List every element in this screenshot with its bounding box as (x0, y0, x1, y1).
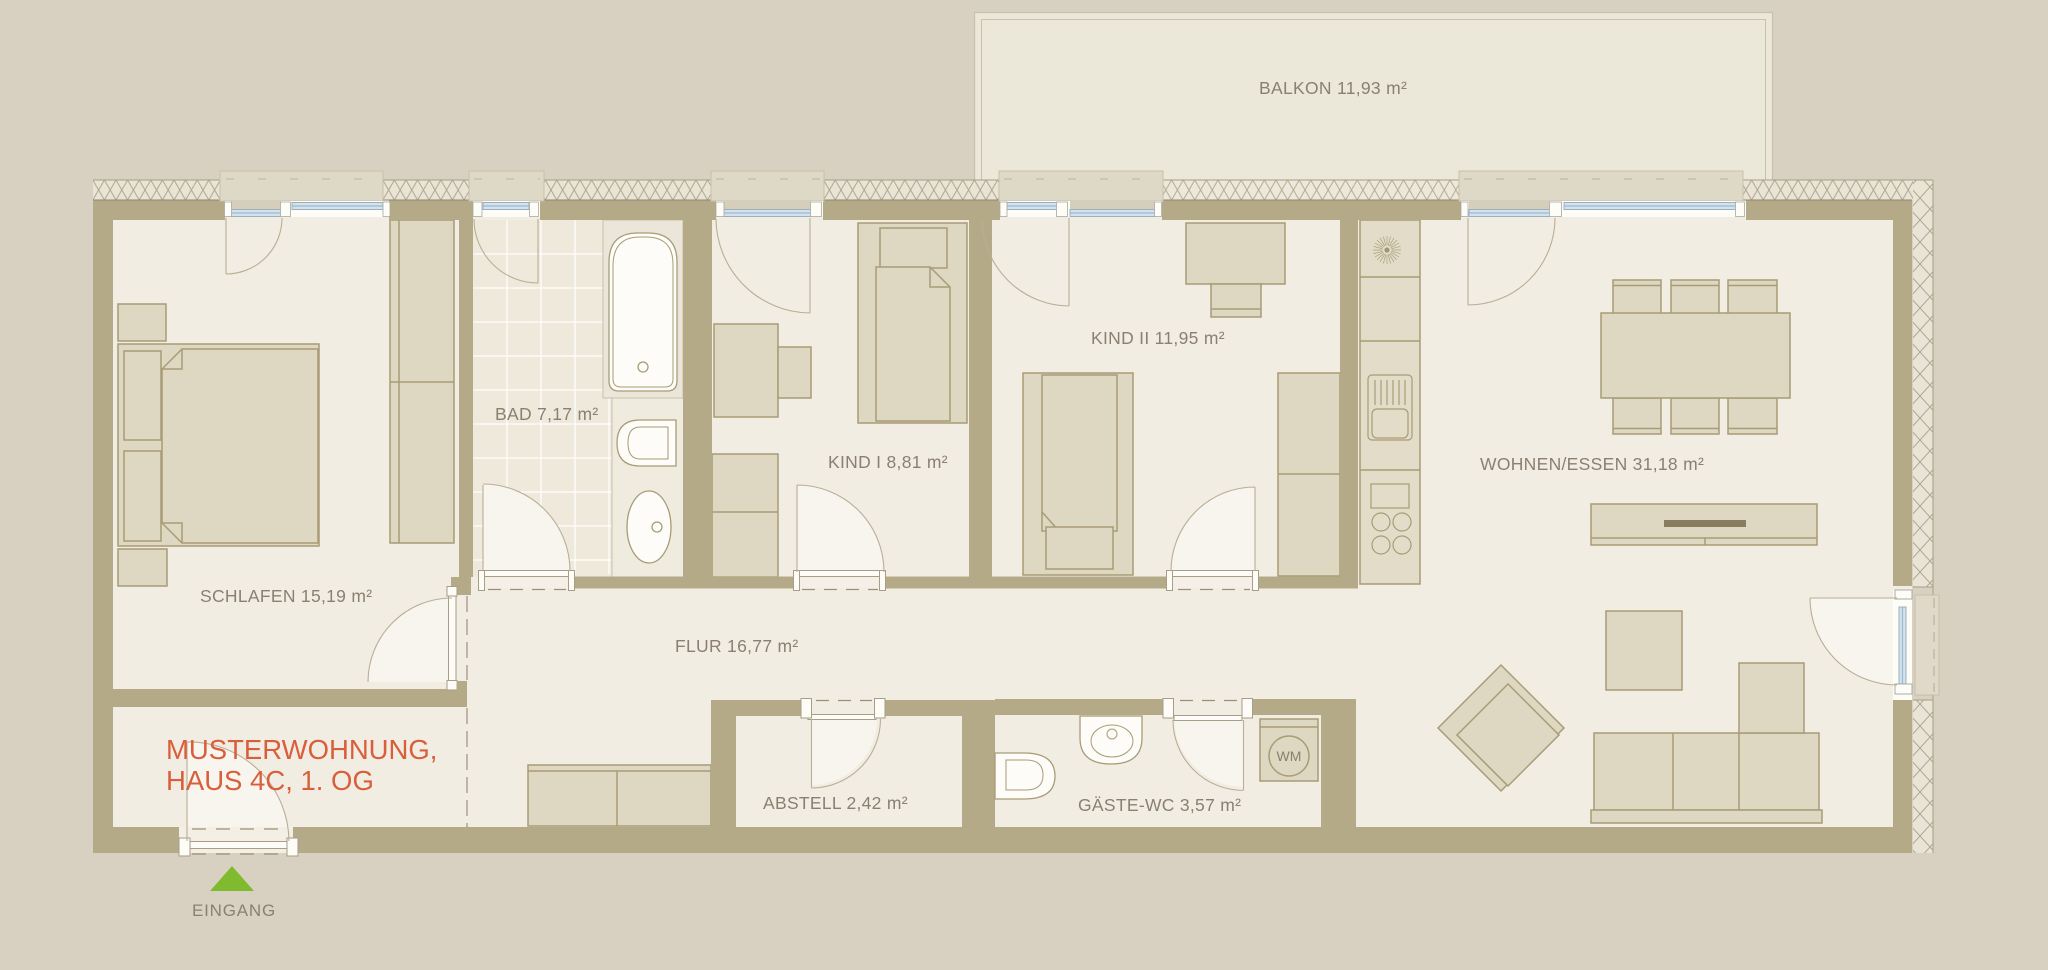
svg-text:FLUR 16,77 m²: FLUR 16,77 m² (675, 636, 799, 656)
svg-text:SCHLAFEN 15,19 m²: SCHLAFEN 15,19 m² (200, 586, 372, 606)
svg-text:BALKON 11,93 m²: BALKON 11,93 m² (1259, 78, 1407, 98)
svg-text:MUSTERWOHNUNG,: MUSTERWOHNUNG, (166, 734, 437, 765)
svg-text:KIND I 8,81 m²: KIND I 8,81 m² (828, 452, 948, 472)
svg-text:HAUS 4C, 1. OG: HAUS 4C, 1. OG (166, 765, 374, 796)
svg-text:ABSTELL 2,42 m²: ABSTELL 2,42 m² (763, 793, 908, 813)
svg-text:BAD 7,17 m²: BAD 7,17 m² (495, 404, 598, 424)
svg-text:WOHNEN/ESSEN 31,18 m²: WOHNEN/ESSEN 31,18 m² (1480, 454, 1704, 474)
svg-text:KIND II 11,95 m²: KIND II 11,95 m² (1091, 328, 1225, 348)
svg-text:WM: WM (1277, 748, 1302, 764)
svg-text:GÄSTE-WC 3,57 m²: GÄSTE-WC 3,57 m² (1078, 795, 1241, 815)
svg-text:EINGANG: EINGANG (192, 901, 276, 920)
